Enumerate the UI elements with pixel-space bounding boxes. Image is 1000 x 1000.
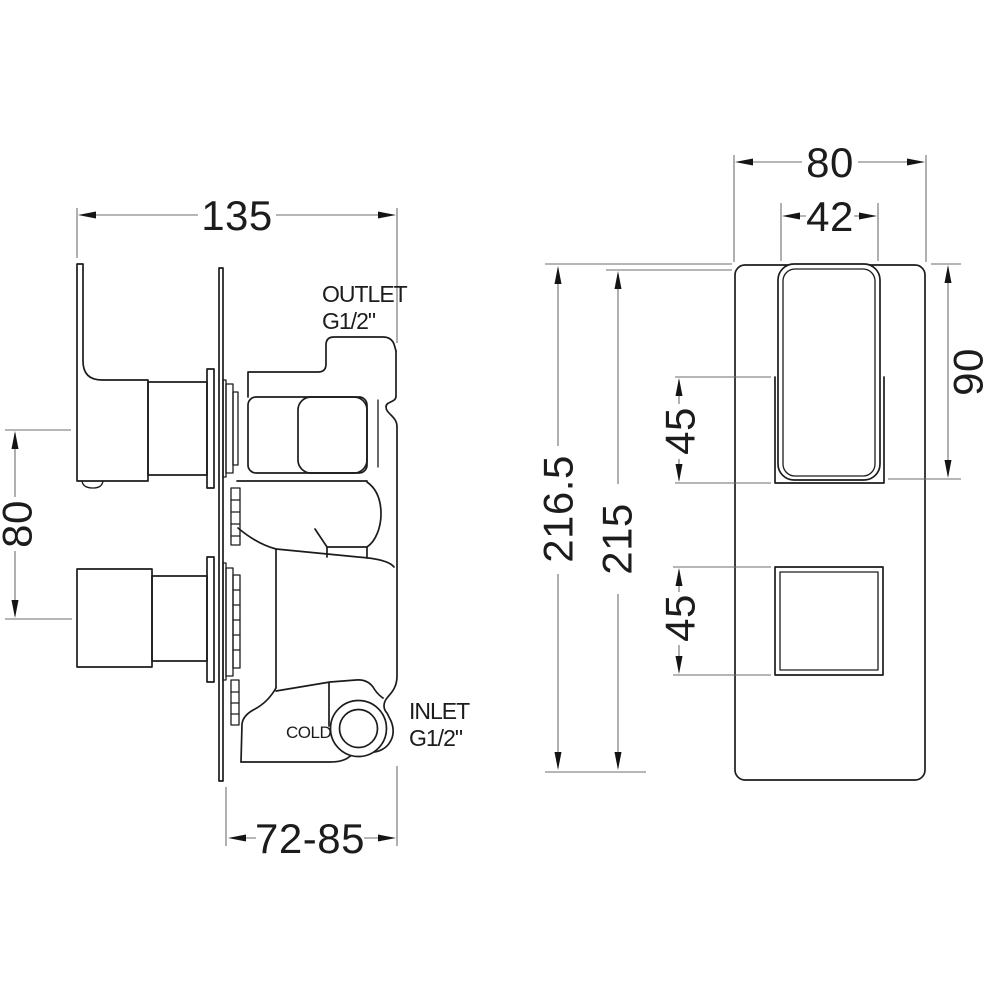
dim-front-handle-width-42: 42 — [781, 193, 878, 261]
dim-label-216-5: 216.5 — [535, 455, 582, 563]
dim-side-wall-depth-72-85: 72-85 — [226, 766, 397, 862]
drawing-canvas: 135 80 72-85 OUTLET G1/2" INLET G1/2" CO… — [0, 0, 1000, 1000]
dim-label-45-top: 45 — [657, 407, 704, 455]
inlet-label: INLET — [409, 698, 470, 724]
dim-label-80-front: 80 — [806, 139, 854, 186]
side-top-handle-tip — [82, 481, 103, 488]
side-lower-lobe-top — [238, 528, 394, 567]
technical-drawing-page: 135 80 72-85 OUTLET G1/2" INLET G1/2" CO… — [0, 0, 1000, 1000]
dim-label-90: 90 — [945, 348, 992, 396]
side-cartridge-block — [248, 397, 367, 473]
side-middle-threaded-section — [231, 488, 240, 545]
side-top-handle-stem — [148, 382, 207, 475]
side-top-handle-lever — [77, 264, 148, 481]
side-body-bottom-edge — [241, 755, 359, 762]
side-body-dome — [367, 482, 381, 547]
side-outlet-port — [248, 337, 396, 397]
side-wall-plate — [219, 268, 223, 781]
side-top-cartridge-rings — [223, 380, 238, 477]
dim-label-135: 135 — [201, 192, 273, 239]
outlet-thread-label: G1/2" — [322, 308, 376, 334]
dim-front-plate-height-215: 215 — [594, 270, 732, 770]
side-top-handle-flange — [207, 369, 214, 488]
side-bottom-knob — [77, 569, 152, 667]
side-cartridge-cap — [298, 397, 367, 473]
dim-label-45-bottom: 45 — [657, 594, 704, 642]
front-bottom-knob-inner — [780, 572, 878, 670]
dim-front-handle-height-90: 90 — [888, 264, 992, 479]
side-bottom-knob-flange — [207, 557, 214, 682]
side-view — [77, 264, 397, 781]
front-view — [735, 264, 925, 780]
dim-label-215: 215 — [594, 503, 641, 575]
side-bottom-cartridge-rings — [223, 563, 240, 725]
dim-label-42: 42 — [806, 193, 854, 240]
front-top-handle — [778, 264, 880, 480]
cold-port-label: COLD — [286, 723, 331, 742]
side-bottom-knob-stem — [152, 576, 207, 661]
dim-side-handle-spacing-80: 80 — [0, 430, 72, 619]
dim-label-72-85: 72-85 — [255, 815, 365, 862]
outlet-label: OUTLET — [322, 281, 408, 307]
inlet-thread-label: G1/2" — [409, 725, 463, 751]
dim-label-80-side: 80 — [0, 500, 41, 548]
dim-front-handle-recess-45: 45 — [657, 377, 771, 483]
dim-front-knob-recess-45: 45 — [657, 567, 771, 675]
front-bottom-knob — [775, 567, 883, 675]
side-valve-body — [237, 337, 397, 762]
